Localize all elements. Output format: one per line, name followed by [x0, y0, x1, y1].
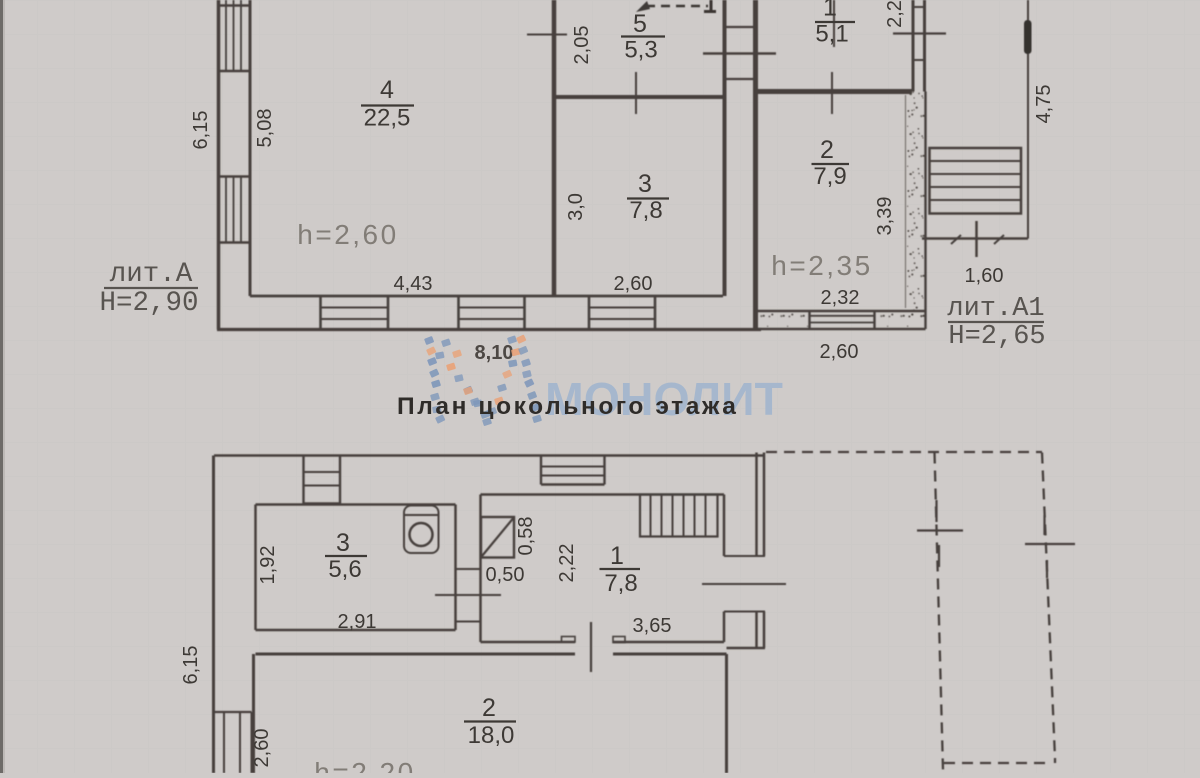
- svg-text:5,08: 5,08: [254, 109, 276, 148]
- svg-text:6,15: 6,15: [190, 111, 212, 150]
- svg-text:5,3: 5,3: [624, 37, 657, 64]
- svg-text:2,2: 2,2: [884, 0, 906, 28]
- svg-text:6,15: 6,15: [180, 646, 202, 685]
- svg-text:4,43: 4,43: [394, 273, 433, 295]
- svg-text:1,60: 1,60: [965, 265, 1004, 287]
- svg-text:2: 2: [482, 694, 496, 722]
- svg-text:3,0: 3,0: [565, 193, 587, 221]
- svg-text:лит.А: лит.А: [110, 259, 193, 290]
- svg-text:7,9: 7,9: [813, 163, 846, 190]
- svg-text:5,6: 5,6: [328, 556, 361, 583]
- svg-text:Н=2,65: Н=2,65: [948, 322, 1045, 352]
- svg-text:2,05: 2,05: [571, 26, 593, 65]
- svg-text:3: 3: [336, 529, 350, 557]
- svg-text:h=2,60: h=2,60: [297, 219, 398, 250]
- svg-text:1,92: 1,92: [257, 546, 279, 585]
- svg-text:5,1: 5,1: [815, 21, 848, 48]
- svg-text:7,8: 7,8: [604, 570, 637, 597]
- svg-text:5: 5: [633, 10, 647, 38]
- svg-text:2: 2: [820, 136, 834, 164]
- svg-text:2,60: 2,60: [820, 341, 859, 363]
- svg-text:3: 3: [638, 170, 652, 198]
- svg-text:План цокольного этажа: План цокольного этажа: [397, 393, 739, 420]
- svg-text:лит.А1: лит.А1: [947, 294, 1044, 324]
- svg-text:1: 1: [823, 0, 837, 22]
- svg-text:2,60: 2,60: [251, 729, 273, 768]
- svg-text:h=2,20: h=2,20: [314, 757, 415, 773]
- svg-text:4: 4: [380, 76, 394, 104]
- svg-text:2,60: 2,60: [614, 273, 653, 295]
- svg-text:2,91: 2,91: [338, 611, 377, 633]
- svg-text:1: 1: [610, 542, 624, 570]
- svg-text:22,5: 22,5: [364, 105, 411, 132]
- svg-text:0,50: 0,50: [486, 564, 525, 586]
- svg-text:h=2,35: h=2,35: [771, 250, 872, 281]
- svg-text:4,75: 4,75: [1033, 85, 1055, 124]
- svg-text:3,65: 3,65: [633, 615, 672, 637]
- svg-text:7,8: 7,8: [629, 197, 662, 224]
- svg-text:2,32: 2,32: [821, 287, 860, 309]
- svg-text:8,10: 8,10: [475, 342, 514, 364]
- svg-text:18,0: 18,0: [468, 722, 515, 749]
- svg-text:0,58: 0,58: [515, 517, 537, 556]
- svg-text:3,39: 3,39: [874, 197, 896, 236]
- svg-text:2,22: 2,22: [556, 544, 578, 583]
- svg-text:Н=2,90: Н=2,90: [99, 288, 198, 319]
